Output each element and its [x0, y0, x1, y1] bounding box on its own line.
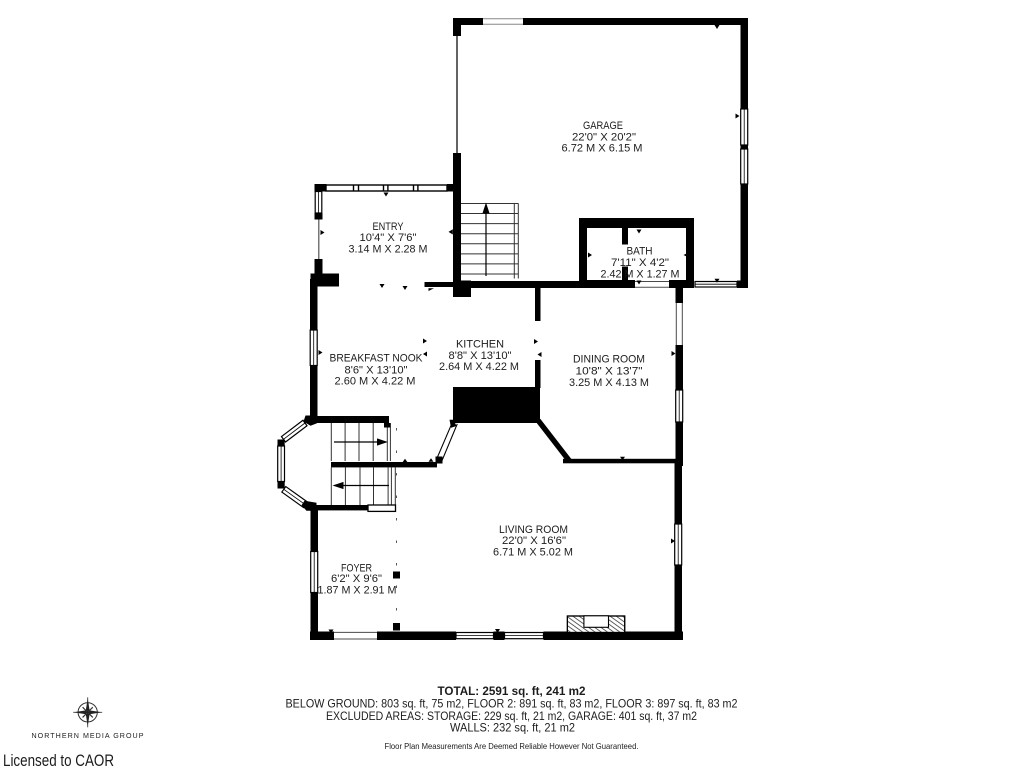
svg-text:Licensed to CAOR: Licensed to CAOR [3, 751, 114, 768]
svg-text:KITCHEN: KITCHEN [456, 338, 504, 350]
svg-text:GARAGE: GARAGE [583, 120, 623, 132]
svg-text:6'2" X 9'6": 6'2" X 9'6" [331, 573, 382, 585]
svg-text:7'11" X 4'2": 7'11" X 4'2" [611, 257, 669, 269]
svg-text:NORTHERN MEDIA GROUP: NORTHERN MEDIA GROUP [32, 733, 145, 740]
svg-text:DINING ROOM: DINING ROOM [573, 354, 645, 366]
svg-text:10'8" X 13'7": 10'8" X 13'7" [576, 366, 643, 378]
svg-text:3.25 M X 4.13 M: 3.25 M X 4.13 M [569, 377, 649, 389]
svg-text:Floor Plan Measurements Are De: Floor Plan Measurements Are Deemed Relia… [385, 741, 639, 751]
svg-text:2.42 M X 1.27 M: 2.42 M X 1.27 M [601, 269, 680, 281]
svg-text:BREAKFAST NOOK: BREAKFAST NOOK [330, 353, 424, 365]
svg-text:6.72 M X 6.15 M: 6.72 M X 6.15 M [562, 142, 643, 154]
svg-text:6.71 M X 5.02 M: 6.71 M X 5.02 M [493, 547, 573, 559]
svg-text:WALLS: 232 sq. ft, 21 m2: WALLS: 232 sq. ft, 21 m2 [450, 721, 575, 735]
svg-text:2.60 M X 4.22 M: 2.60 M X 4.22 M [335, 376, 416, 388]
svg-text:22'0" X 16'6": 22'0" X 16'6" [502, 535, 566, 547]
svg-text:10'4" X 7'6": 10'4" X 7'6" [360, 232, 417, 244]
svg-text:1.87 M X 2.91 M: 1.87 M X 2.91 M [318, 585, 397, 597]
svg-text:3.14 M X 2.28 M: 3.14 M X 2.28 M [349, 243, 428, 255]
svg-text:BATH: BATH [627, 246, 653, 258]
svg-text:2.64 M X 4.22 M: 2.64 M X 4.22 M [439, 361, 519, 373]
